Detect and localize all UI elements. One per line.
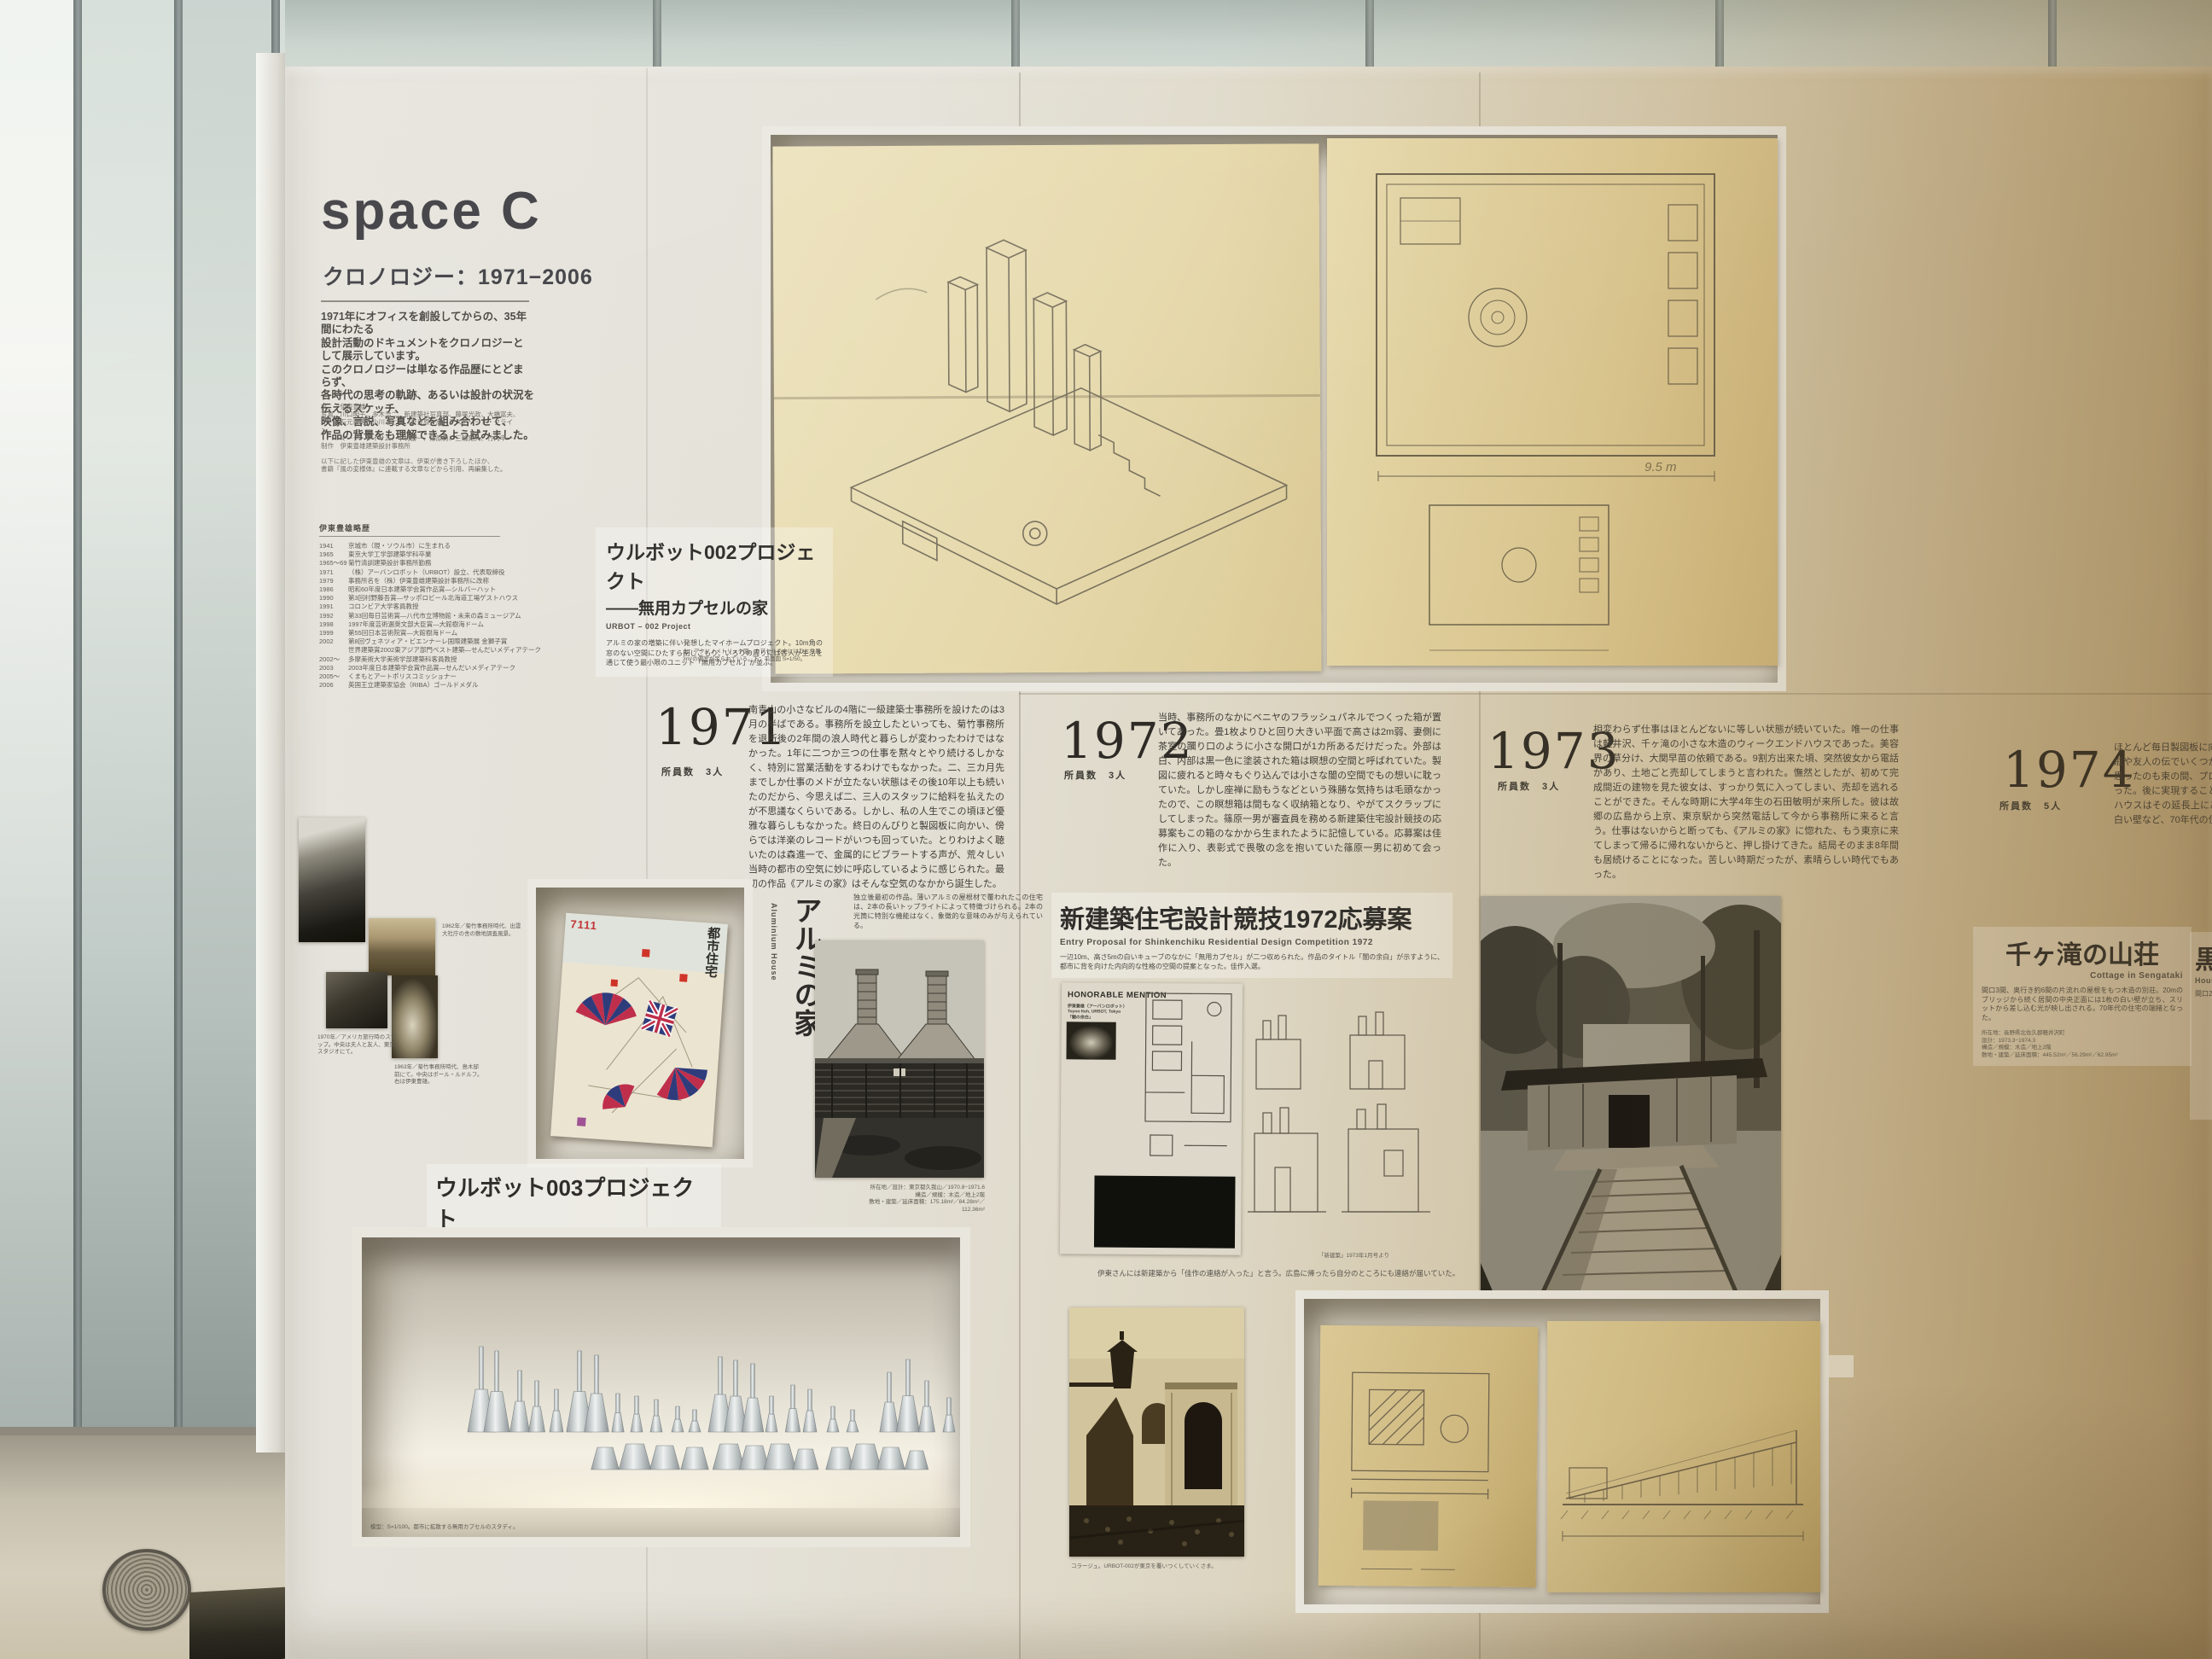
entry-night-photo (1094, 1176, 1236, 1249)
sengataki-title: 千ヶ滝の山荘 (1982, 934, 2183, 971)
bio-row: 19981997年度芸術選奨文部大臣賞—大館樹海ドーム (319, 620, 575, 629)
urbot002-figure-note: 上：アクソノメトリック図。カプセルの中にはひとり用3m²の個室が吊られている。下… (683, 649, 824, 663)
plan-dimension-note: 9.5 m (1644, 460, 1677, 474)
bio-row: 2002〜多摩美術大学美術学部建築科客員教授 (319, 655, 575, 664)
bio-row: 1992第33回毎日芸術賞—八代市立博物館・未来の森ミュージアム (319, 612, 575, 620)
glass-wall-left (0, 0, 285, 1451)
models-caption: 模型：S=1/100。都市に拡散する無用カプセルのスタディ。 (370, 1524, 518, 1532)
credit-line: 構造／規模：木造／地上2階 (847, 1192, 985, 1200)
staff-label: 所員数 (661, 767, 695, 777)
bio-row: 1965〜69菊竹清訓建築設計事務所勤務 (319, 559, 575, 568)
bio-row: 1999第55回日本芸術院賞—大館樹海ドーム (319, 629, 575, 637)
plan-drawing-sheet: 9.5 m (1327, 138, 1778, 666)
year-1974-text: ほとんど毎日製図板に向かう日々。開いて二、三年もすると、親戚や友人の伝でいくつか… (2114, 741, 2212, 828)
glass-pane (82, 0, 174, 1451)
display-case-magazine: 7111 都市住宅 (527, 879, 753, 1167)
staff-count: 3人 (1109, 771, 1126, 781)
shinkenchiku-label: 新建築住宅設計競技1972応募案 Entry Proposal for Shin… (1051, 893, 1452, 978)
section-drawing (1547, 1321, 1820, 1592)
sengataki-description: 間口3間、奥行き約6間の片流れの屋根をもつ木造の別荘。20mのブリッジから続く居… (1982, 987, 2183, 1022)
clipped-label-desc: 間口2間の小さな住宅。中央の黒い空間が特徴。 (2195, 990, 2212, 999)
urbot002-en-title: URBOT – 002 Project (606, 622, 823, 631)
clipped-label-right-edge: 黒の回帰 House in … 間口2間の小さな住宅。中央の黒い空間が特徴。 (2190, 932, 2212, 1128)
staff-label: 所員数 (2000, 801, 2033, 812)
sengataki-data: 所在地：長野県北佐久郡軽井沢町 設計：1973.3−1974.3 構造／規模：木… (1982, 1030, 2183, 1059)
bio-row: 20032003年度日本建築学会賞作品賞—せんだいメディアテーク (319, 664, 575, 672)
staff-count: 3人 (706, 767, 724, 777)
urbot-collage-photo (1069, 1307, 1244, 1557)
bio-row: 1979事務所名を（株）伊東豊雄建築設計事務所に改称 (319, 577, 575, 585)
panel-left-edge (256, 53, 285, 1452)
staff-label: 所員数 (1064, 771, 1097, 781)
panel-title: space C (321, 181, 542, 242)
aluminium-house-credits: 所在地／設計：東京都久我山／1970.8−1971.6 構造／規模：木造／地上2… (847, 1185, 985, 1214)
data-line: 敷地・建築／延床面積：445.52m²／56.29m²／62.95m² (1982, 1052, 2183, 1060)
panel-subtitle: クロノロジー：1971−2006 (323, 260, 593, 291)
bio-row: 1971（株）アーバンロボット（URBOT）設立、代表取締役 (319, 568, 575, 577)
bio-row: 1941京城市（現・ソウル市）に生まれる (319, 542, 575, 550)
credit-note: 書籍『風の変様体』に連載する文章などから引用、再編集した。 (321, 465, 521, 473)
biography-list: 伊東豊雄略歴 1941京城市（現・ソウル市）に生まれる1965東京大学工学部建築… (319, 522, 575, 690)
exhibition-room-photo: space C クロノロジー：1971−2006 1971年にオフィスを創設して… (0, 0, 2212, 1659)
section-sketch-sheet (1318, 1325, 1539, 1587)
sengataki-cottage-photo (1481, 896, 1781, 1353)
urbot002-subtitle: ——無用カプセルの家 (606, 596, 823, 619)
shinkenchiku-en-title: Entry Proposal for Shinkenchiku Resident… (1060, 938, 1444, 947)
year-1973-staff: 所員数 3人 (1498, 779, 1560, 793)
entry-plan-drawing (1142, 990, 1238, 1174)
clipped-label-en: House in … (2195, 976, 2212, 985)
section-drawing-sheet (1547, 1321, 1820, 1592)
sengataki-cottage-art (1481, 896, 1781, 1353)
data-line: 設計：1973.3−1974.3 (1982, 1038, 2183, 1045)
floor-drain (102, 1549, 191, 1631)
axonometric-drawing-sheet (772, 143, 1321, 673)
floor-wall-junction (0, 1427, 290, 1435)
bio-row: 2002第8回ヴェネツィア・ビエンナーレ国際建築展 金獅子賞 (319, 637, 575, 646)
sengataki-en-title: Cottage in Sengataki (1982, 971, 2183, 981)
magazine-source-caption: 「新建築」1973年1月号より (1318, 1253, 1447, 1260)
staff-count: 5人 (2044, 801, 2062, 812)
bio-photo-caption: 1963年／菊竹事務所時代、島木邸前にて。中央はポール・ルドルフ。右は伊東豊雄。 (394, 1064, 484, 1086)
entry-elevation-drawings (1248, 988, 1452, 1244)
bio-row: 1986昭和60年度日本建築学会賞作品賞—シルバーハット (319, 585, 575, 594)
year-1972-staff: 所員数 3人 (1064, 768, 1126, 782)
data-line: 所在地：長野県北佐久郡軽井沢町 (1982, 1030, 2183, 1038)
magazine-urban-housing: 7111 都市住宅 (550, 913, 728, 1148)
bio-row: 1965東京大学工学部建築学科卒業 (319, 550, 575, 559)
year-1971-text: 南青山の小さなビルの4階に一級建築士事務所を設けたのは3月の半ばである。事務所を… (748, 703, 1004, 892)
year-1973-text: 相変わらず仕事はほとんどないに等しい状態が続いていた。唯一の仕事は軽井沢、千ヶ滝… (1593, 723, 1899, 882)
credit-line: マーク・ダイサム、中村勝一、篠原勇、三輪晃久、竹内申一 (321, 434, 521, 442)
entry-credit-lines: 伊東豊雄（アーバンロボット） Toyoo Itoh, URBOT, Tokyo … (1068, 1004, 1127, 1021)
staff-label: 所員数 (1498, 782, 1531, 792)
window-mullion (174, 0, 183, 1451)
collage-caption: コラージュ。URBOT-002が東京を覆いつくしていくさま。 (1071, 1563, 1254, 1571)
shinkenchiku-title: 新建築住宅設計競技1972応募案 (1060, 899, 1444, 935)
bio-row: 2005〜くまもとアートポリスコミッショナー (319, 672, 575, 681)
magazine-cover-art (550, 913, 728, 1148)
credits-block: 文 伊東豊雄 写真 川口明子、多木浩二、新建築社写真部、藤塚光政、大橋富夫、 石… (321, 403, 521, 474)
urbot002-title: ウルボット002プロジェクト (606, 536, 823, 594)
magazine-issue-number: 7111 (570, 917, 597, 932)
credit-line: 敷地・建築／延床面積：175.18m²／84.28m²／112.36m² (847, 1199, 985, 1214)
credit-line: 制作 伊東豊雄建築設計事務所 (321, 442, 521, 450)
year-1972-text: 当時、事務所のなかにベニヤのフラッシュパネルでつくった箱が置いてあった。畳1枚よ… (1158, 711, 1441, 870)
title-divider (321, 300, 529, 302)
aluminium-house-description: 独立後最初の作品。薄いアルミの屋根材で覆われたこの住宅は、2本の長いトップライト… (853, 893, 1043, 930)
bio-row: 1991コロンビア大学客員教授 (319, 602, 575, 611)
section-sketch (1318, 1325, 1539, 1587)
aluminium-house-photo-art (815, 940, 984, 1178)
bio-photo-caption: 1970年／アメリカ旅行時のスナップ。中央は夫人と友人、東京スタジオにて。 (317, 1034, 399, 1057)
clipped-label-title: 黒の回帰 (2195, 939, 2212, 976)
year-1974-staff: 所員数 5人 (2000, 799, 2062, 812)
bio-row: 世界建築賞2002東アジア部門ベスト建築—せんだいメディアテーク (319, 646, 575, 655)
display-niche-sections (1295, 1290, 1829, 1613)
entry-authors-photo (1066, 1022, 1115, 1059)
aluminium-house-photo (815, 940, 984, 1178)
bio-photo-group (326, 972, 387, 1028)
bio-photo-landscape (369, 918, 435, 975)
plan-drawing: 9.5 m (1327, 138, 1778, 666)
staff-count: 3人 (1542, 782, 1560, 792)
magazine-masthead: 都市住宅 (701, 926, 723, 978)
shinkenchiku-description: 一辺10m、高さ5mの白いキューブのなかに「無用カプセル」が二つ収められた。作品… (1060, 953, 1444, 971)
bio-photo-camera (299, 818, 365, 942)
bio-row: 2006英国王立建築家協会（RIBA）ゴールドメダル (319, 681, 575, 690)
biography-heading: 伊東豊雄略歴 (319, 522, 500, 537)
credit-line: 「闇の余白」 (1068, 1015, 1127, 1021)
display-niche-drawings: 9.5 m (762, 126, 1786, 691)
year-1974-text-clip: ほとんど毎日製図板に向かう日々。開いて二、三年もすると、親戚や友人の伝でいくつか… (2114, 741, 2212, 907)
data-line: 構造／規模：木造／地上2階 (1982, 1045, 2183, 1052)
axonometric-drawing (772, 143, 1321, 673)
credit-line: 文 伊東豊雄 (321, 403, 521, 410)
glass-pane (0, 0, 73, 1451)
window-mullion (73, 0, 82, 1451)
year-1971-staff: 所員数 3人 (661, 765, 724, 778)
display-case-models: 模型：S=1/100。都市に拡散する無用カプセルのスタディ。 (352, 1227, 970, 1547)
aluminium-house-en-vertical: Aluminium House (770, 903, 778, 981)
urbot003-title: ウルボット003プロジェクト (435, 1171, 713, 1234)
magazine-spread-left-page: HONORABLE MENTION 伊東豊雄（アーバンロボット） Toyoo I… (1060, 982, 1243, 1254)
sengataki-label: 千ヶ滝の山荘 Cottage in Sengataki 間口3間、奥行き約6間の… (1973, 927, 2192, 1066)
bio-rows: 1941京城市（現・ソウル市）に生まれる1965東京大学工学部建築学科卒業196… (319, 542, 575, 690)
bio-photo-caption: 1962年／菊竹事務所時代、出雲大社庁の舎の敷地調査風景。 (442, 923, 523, 938)
quote-line: 伊東さんには新建築から「佳作の連絡が入った」と言う。広島に帰ったら自分のところに… (1097, 1268, 1464, 1279)
credit-line: 石元泰博、小川さとし、奈良原一高、アストリッド・クライン、 (321, 418, 521, 434)
credit-line: 所在地／設計：東京都久我山／1970.8−1971.6 (847, 1185, 985, 1192)
panel-seam (1019, 693, 2212, 695)
bio-photo-portrait (392, 975, 438, 1058)
models-svg (362, 1237, 960, 1537)
bio-row: 1990第3回村野藤吾賞—サッポロビール北海道工場ゲストハウス (319, 594, 575, 602)
urbot-collage-art (1069, 1307, 1244, 1557)
